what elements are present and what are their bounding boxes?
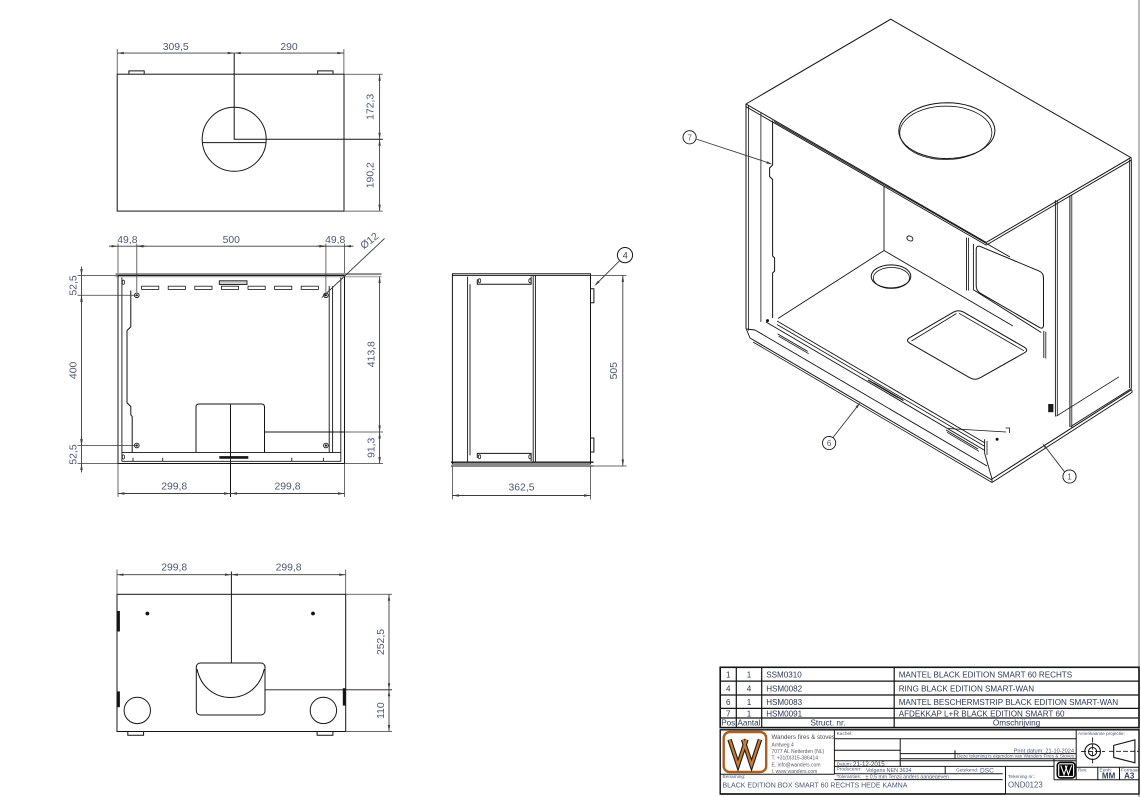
svg-text:4: 4 xyxy=(747,684,752,693)
svg-text:7: 7 xyxy=(687,133,692,142)
svg-text:110: 110 xyxy=(376,702,387,719)
svg-text:Kachel:: Kachel: xyxy=(837,731,853,737)
svg-text:± 0,5 mm Tenzij anders aangege: ± 0,5 mm Tenzij anders aangegeven xyxy=(866,774,950,780)
svg-text:1: 1 xyxy=(1067,473,1072,482)
svg-text:6: 6 xyxy=(827,439,832,448)
svg-text:Aantal: Aantal xyxy=(738,719,761,728)
svg-text:413,8: 413,8 xyxy=(367,341,378,367)
svg-text:500: 500 xyxy=(223,235,241,246)
svg-text:362,5: 362,5 xyxy=(508,483,534,494)
svg-text:1: 1 xyxy=(726,671,731,680)
svg-text:290: 290 xyxy=(280,42,298,53)
svg-text:252,5: 252,5 xyxy=(376,629,387,655)
svg-text:E. info@wanders.com: E. info@wanders.com xyxy=(772,762,821,768)
svg-text:52,5: 52,5 xyxy=(69,275,80,295)
svg-text:52,5: 52,5 xyxy=(69,444,80,464)
svg-text:Volgens NEN 3634: Volgens NEN 3634 xyxy=(866,768,912,774)
svg-text:400: 400 xyxy=(69,362,80,380)
svg-text:Pos: Pos xyxy=(721,719,735,728)
svg-text:Toleranties:: Toleranties: xyxy=(837,774,862,780)
svg-text:T. +31(0)315-386414: T. +31(0)315-386414 xyxy=(772,756,819,762)
svg-text:299,8: 299,8 xyxy=(161,562,187,573)
svg-text:HSM0083: HSM0083 xyxy=(766,698,802,707)
svg-text:HSM0082: HSM0082 xyxy=(766,684,802,693)
svg-text:Amerikaanse projectie:: Amerikaanse projectie: xyxy=(1078,731,1125,736)
svg-text:1: 1 xyxy=(747,671,752,680)
svg-text:DSC: DSC xyxy=(980,767,994,774)
svg-text:SSM0310: SSM0310 xyxy=(766,671,802,680)
svg-text:Struct. nr.: Struct. nr. xyxy=(810,719,845,728)
svg-text:MANTEL BLACK EDITION SMART 60: MANTEL BLACK EDITION SMART 60 RECHTS xyxy=(899,671,1073,680)
svg-text:Rev.: Rev. xyxy=(1078,767,1088,773)
svg-text:172,3: 172,3 xyxy=(366,94,377,120)
svg-text:7077 AL Netterden (NL): 7077 AL Netterden (NL) xyxy=(772,749,825,755)
svg-text:OND0123: OND0123 xyxy=(1008,781,1043,790)
svg-text:Omschrijving: Omschrijving xyxy=(993,719,1041,728)
svg-text:Amtweg 4: Amtweg 4 xyxy=(772,743,794,749)
svg-text:190,2: 190,2 xyxy=(366,162,377,188)
svg-text:Producerer:: Producerer: xyxy=(837,767,862,773)
svg-text:49,8: 49,8 xyxy=(325,235,345,246)
svg-text:299,8: 299,8 xyxy=(274,481,300,492)
svg-text:HSM0091: HSM0091 xyxy=(766,710,802,719)
svg-text:1: 1 xyxy=(747,710,752,719)
svg-text:I. www.wanders.com: I. www.wanders.com xyxy=(772,769,818,775)
svg-text:AFDEKKAP L+R BLACK EDITION SMA: AFDEKKAP L+R BLACK EDITION SMART 60 xyxy=(899,710,1065,719)
svg-text:Deze tekening is eigendom van: Deze tekening is eigendom van Wanders Fi… xyxy=(957,754,1075,759)
svg-text:MANTEL BESCHERMSTRIP BLACK EDI: MANTEL BESCHERMSTRIP BLACK EDITION SMART… xyxy=(899,698,1119,707)
svg-text:Benaming:: Benaming: xyxy=(723,774,746,780)
svg-text:505: 505 xyxy=(609,362,620,380)
svg-text:Datum:: Datum: xyxy=(837,761,852,767)
svg-text:Wanders fires & stoves: Wanders fires & stoves xyxy=(772,734,835,741)
svg-text:Getekend:: Getekend: xyxy=(956,768,978,774)
svg-text:299,8: 299,8 xyxy=(161,481,187,492)
svg-text:MM: MM xyxy=(1102,771,1116,780)
svg-text:4: 4 xyxy=(726,684,731,693)
svg-text:RING BLACK EDITION SMART-WAN: RING BLACK EDITION SMART-WAN xyxy=(899,684,1035,693)
svg-text:91,3: 91,3 xyxy=(367,437,378,457)
svg-text:Ø12: Ø12 xyxy=(359,231,381,252)
svg-text:7: 7 xyxy=(726,710,731,719)
svg-text:BLACK EDITION BOX SMART 60 REC: BLACK EDITION BOX SMART 60 RECHTS HEDE K… xyxy=(723,782,908,789)
svg-text:299,8: 299,8 xyxy=(276,562,302,573)
svg-text:1: 1 xyxy=(747,698,752,707)
svg-text:Tekening nr.:: Tekening nr.: xyxy=(1008,774,1035,780)
svg-text:49,8: 49,8 xyxy=(117,235,137,246)
svg-text:4: 4 xyxy=(623,251,628,261)
svg-text:A3: A3 xyxy=(1124,771,1135,780)
svg-text:309,5: 309,5 xyxy=(163,42,189,53)
svg-text:6: 6 xyxy=(726,698,731,707)
